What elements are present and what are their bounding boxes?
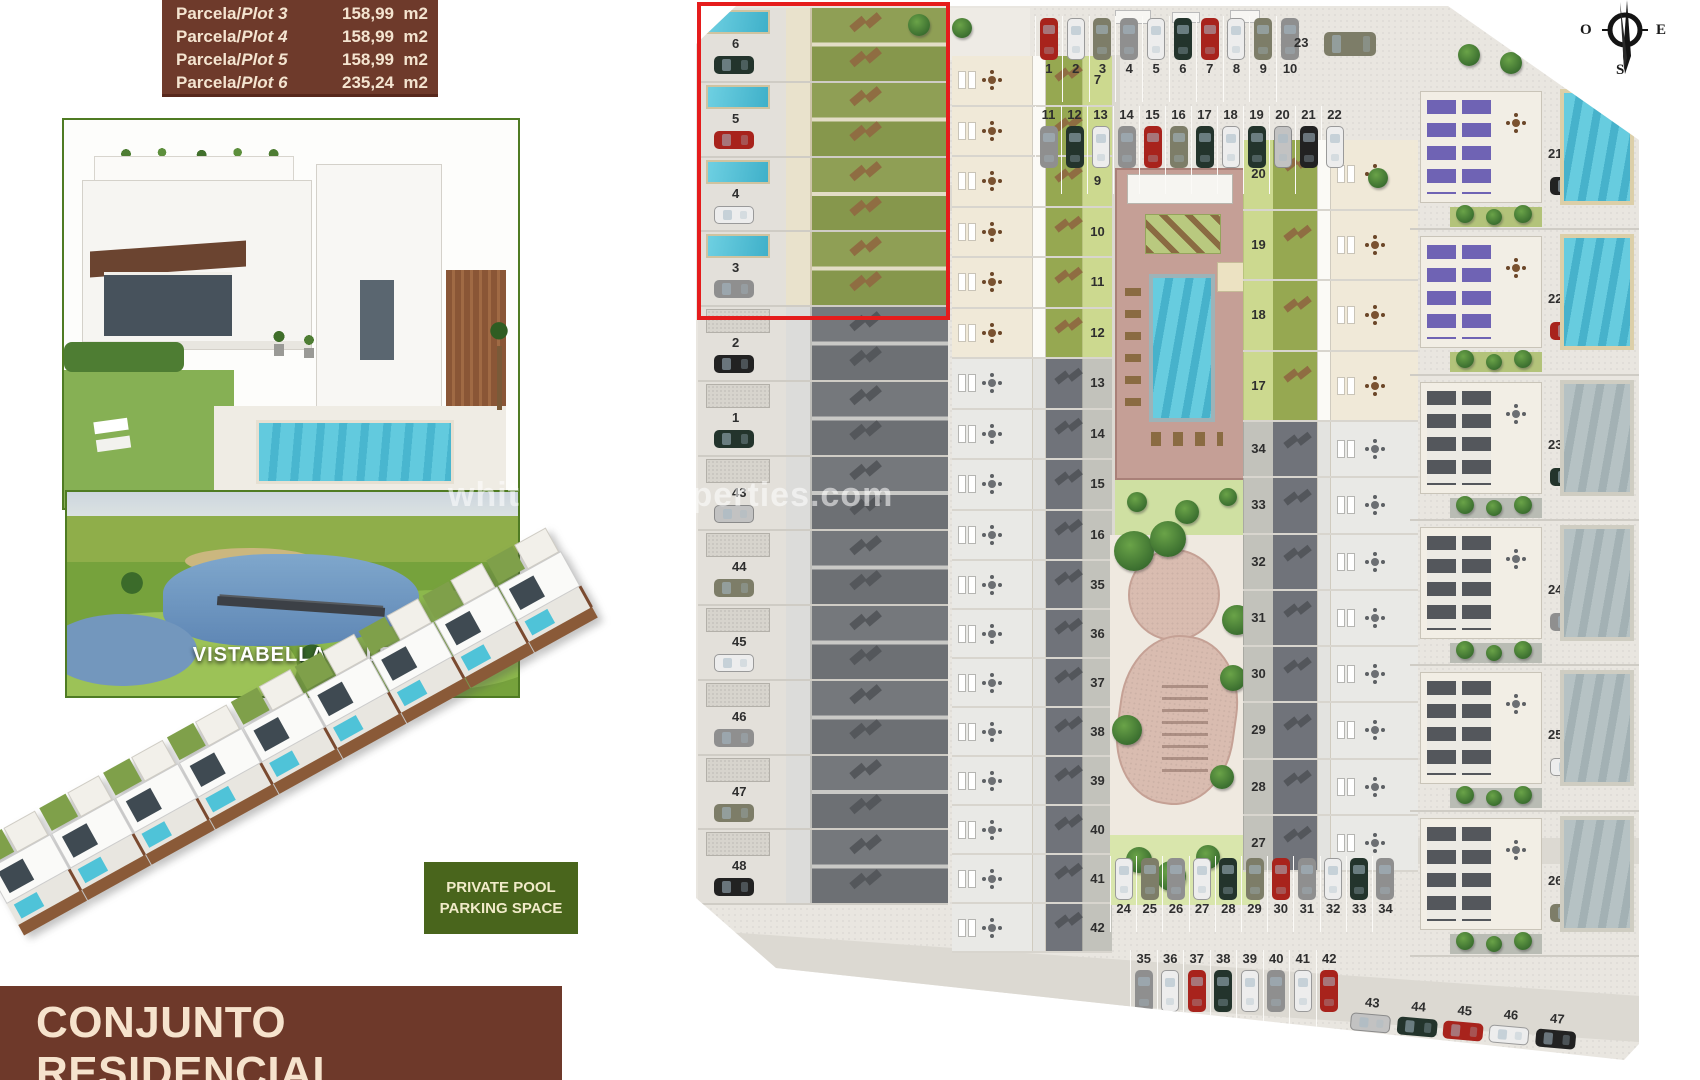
plot-row: Parcela/Plot 6 235,24 m2 — [176, 71, 428, 94]
house-roof — [1032, 757, 1046, 804]
parking-space: 32 — [1320, 856, 1346, 932]
roof-terrace — [952, 359, 1032, 408]
tree-icon — [1514, 641, 1532, 659]
plot-number: 17 — [1251, 379, 1265, 393]
plot-number-cell: 29 — [1243, 703, 1273, 757]
garden — [1046, 806, 1082, 853]
parking-number: 16 — [1171, 108, 1185, 122]
house-roof — [1317, 281, 1331, 350]
roof-terrace — [952, 561, 1032, 608]
car-icon — [1535, 1028, 1576, 1049]
roof-garden — [812, 531, 948, 604]
roof-terrace — [1331, 281, 1418, 350]
roof-terrace — [1331, 647, 1418, 701]
car-icon — [1241, 970, 1259, 1012]
palm-tree — [484, 320, 514, 410]
house — [786, 382, 948, 455]
parking-number: 31 — [1300, 902, 1314, 916]
parking-space: 14 — [1113, 106, 1139, 194]
car-icon — [1196, 126, 1214, 168]
private-pool — [1560, 89, 1634, 205]
plot-number-cell: 11 — [1082, 258, 1112, 307]
garden — [1046, 511, 1082, 560]
solar-panels — [1427, 245, 1491, 339]
plot-number: 39 — [1090, 774, 1104, 788]
table-chairs-icon — [1507, 841, 1525, 859]
parking-space: 40 — [1263, 950, 1290, 1036]
plot-number-cell: 37 — [1082, 659, 1112, 706]
plot-number: 28 — [1251, 780, 1265, 794]
roof-terrace — [1331, 760, 1418, 814]
plot-row: Parcela/Plot 5 158,99 m2 — [176, 48, 428, 71]
car-icon — [1066, 126, 1084, 168]
plot-number-cell: 19 — [1243, 211, 1273, 280]
tree-icon — [1486, 790, 1502, 806]
house-wall — [786, 681, 812, 754]
features-line2: PARKING SPACE — [440, 898, 563, 919]
parking-number: 8 — [1233, 62, 1240, 76]
parking-space: 27 — [1189, 856, 1215, 932]
plot-number: 37 — [1090, 676, 1104, 690]
parking-row-south-1: 24 25 26 27 28 29 30 — [1110, 856, 1398, 932]
plot-number: 12 — [1090, 326, 1104, 340]
tree-icon — [1127, 492, 1147, 512]
house-roof — [1317, 760, 1331, 814]
parking-space: 18 — [1217, 106, 1243, 194]
parking-number: 18 — [1223, 108, 1237, 122]
car-icon — [1350, 858, 1368, 900]
parking-number: 12 — [1067, 108, 1081, 122]
plot-label: Parcela/Plot 3 — [176, 4, 332, 24]
plot-number: 48 — [732, 859, 746, 873]
plot-number: 33 — [1251, 498, 1265, 512]
private-pool — [1560, 380, 1634, 496]
table-chairs-icon — [983, 122, 1001, 140]
plot-cell: 40 — [952, 806, 1112, 855]
garage-slab — [706, 758, 770, 782]
car-icon — [1115, 858, 1133, 900]
table-chairs-icon — [1366, 377, 1384, 395]
car-icon — [1326, 126, 1344, 168]
tree-icon — [1112, 715, 1142, 745]
parking-space: 7 — [1196, 16, 1223, 102]
plot-cell: 15 — [952, 460, 1112, 511]
car-icon — [1219, 858, 1237, 900]
table-chairs-icon — [983, 475, 1001, 493]
parking-number: 33 — [1352, 902, 1366, 916]
plot-number-cell: 33 — [1243, 478, 1273, 532]
page-title: CONJUNTO RESIDENCIAL — [36, 998, 562, 1080]
plot-cell: 30 — [1243, 647, 1418, 703]
house-roof — [1032, 904, 1046, 951]
garden — [1273, 591, 1317, 645]
car-icon — [1167, 858, 1185, 900]
car-icon — [1489, 1024, 1530, 1045]
roof-terrace — [952, 410, 1032, 459]
car-icon — [1294, 970, 1312, 1012]
plot-area-unit: m2 — [394, 50, 428, 70]
garden — [1450, 498, 1542, 518]
plot-cell: 18 — [1243, 281, 1418, 352]
garden — [1273, 211, 1317, 280]
garden — [1046, 561, 1082, 608]
parking-number: 9 — [1260, 62, 1267, 76]
title-banner: CONJUNTO RESIDENCIAL DEVELOPMENT PLAN — [0, 986, 562, 1080]
plot-number: 46 — [732, 710, 746, 724]
parking-space: 47 — [1530, 1008, 1581, 1068]
plot-number: 40 — [1090, 823, 1104, 837]
table-chairs-icon — [983, 374, 1001, 392]
roof-garden — [812, 756, 948, 829]
tree-icon — [1514, 350, 1532, 368]
plot-number-cell: 40 — [1082, 806, 1112, 853]
driveway: 47 — [698, 756, 786, 829]
plant-pot — [300, 334, 318, 358]
tree-icon — [1368, 168, 1388, 188]
car-icon — [1222, 126, 1240, 168]
roof-terrace — [1331, 535, 1418, 589]
plot-label: Parcela/Plot 6 — [176, 73, 332, 93]
table-chairs-icon — [1366, 721, 1384, 739]
table-chairs-icon — [983, 425, 1001, 443]
car-icon — [1396, 1016, 1437, 1037]
car-icon — [1376, 858, 1394, 900]
garden — [1450, 934, 1542, 954]
table-chairs-icon — [1366, 236, 1384, 254]
parking-space: 42 — [1316, 950, 1343, 1036]
plot-cell: 14 — [952, 410, 1112, 461]
plot-cell: 29 — [1243, 703, 1418, 759]
parking-space: 8 — [1223, 16, 1250, 102]
tree-icon — [1456, 350, 1474, 368]
car-icon — [1170, 126, 1188, 168]
table-chairs-icon — [983, 919, 1001, 937]
parking-space: 19 — [1243, 106, 1269, 194]
house-wall — [786, 756, 812, 829]
table-chairs-icon — [983, 625, 1001, 643]
house-wall — [786, 830, 812, 903]
plot-cell: 46 — [698, 681, 948, 756]
parking-row-south-2: 35 36 37 38 39 40 41 — [1130, 950, 1342, 1036]
table-chairs-icon — [1366, 778, 1384, 796]
parking-row-north-2: 11 12 13 14 15 16 17 — [1035, 106, 1347, 194]
garden — [1273, 535, 1317, 589]
plot-area: 158,99 — [332, 50, 394, 70]
parking-space: 17 — [1191, 106, 1217, 194]
house-wall — [786, 382, 812, 455]
parking-space: 41 — [1289, 950, 1316, 1036]
parking-space: 34 — [1372, 856, 1398, 932]
garden — [1450, 352, 1542, 372]
table-chairs-icon — [983, 273, 1001, 291]
plot-number-cell: 28 — [1243, 760, 1273, 814]
plot-number-cell: 16 — [1082, 511, 1112, 560]
table-chairs-icon — [1366, 553, 1384, 571]
house-roof — [1317, 703, 1331, 757]
parking-space: 9 — [1249, 16, 1276, 102]
table-chairs-icon — [1366, 306, 1384, 324]
plot-number: 45 — [732, 635, 746, 649]
private-pool — [256, 420, 454, 484]
plot-number-cell: 35 — [1082, 561, 1112, 608]
house-roof — [1032, 511, 1046, 560]
plot-number: 13 — [1090, 376, 1104, 390]
plot-number: 47 — [732, 785, 746, 799]
parking-number: 10 — [1283, 62, 1297, 76]
tree-icon — [1514, 786, 1532, 804]
tree-icon — [1500, 52, 1522, 74]
tree-icon — [119, 570, 145, 596]
roof-garden — [812, 382, 948, 455]
garden — [1273, 478, 1317, 532]
parking-space: 35 — [1130, 950, 1157, 1036]
plot-cell: 22 — [1410, 230, 1640, 375]
parking-number: 17 — [1197, 108, 1211, 122]
parking-number: 35 — [1137, 952, 1151, 966]
house — [1420, 91, 1542, 203]
parking-number: 29 — [1247, 902, 1261, 916]
house-roof — [1317, 478, 1331, 532]
plot-number: 10 — [1090, 225, 1104, 239]
plot-number-cell: 36 — [1082, 610, 1112, 657]
car-icon — [1141, 858, 1159, 900]
house — [1420, 818, 1542, 930]
plot-cell: 23 — [1410, 376, 1640, 521]
house-roof — [1032, 855, 1046, 902]
solar-panels — [1427, 681, 1491, 775]
car-icon — [1067, 18, 1085, 60]
tree-icon — [393, 608, 427, 642]
parking-number: 1 — [1045, 62, 1052, 76]
car-icon — [1214, 970, 1232, 1012]
roof-terrace — [952, 208, 1032, 257]
table-chairs-icon — [983, 223, 1001, 241]
plot-number: 29 — [1251, 723, 1265, 737]
house-roof — [1317, 211, 1331, 280]
roof-parapet — [94, 156, 294, 182]
driveway: 46 — [698, 681, 786, 754]
villa-render-photo — [62, 118, 520, 510]
garden — [1046, 855, 1082, 902]
house — [1420, 672, 1542, 784]
plot-cell: 31 — [1243, 591, 1418, 647]
plot-cell: 35 — [952, 561, 1112, 610]
garden — [1450, 788, 1542, 808]
solar-panels — [1427, 827, 1491, 921]
garden — [1450, 643, 1542, 663]
plot-area: 235,24 — [332, 73, 394, 93]
house-roof — [1317, 647, 1331, 701]
plot-number: 2 — [732, 336, 739, 350]
table-chairs-icon — [1366, 609, 1384, 627]
plot-number-cell: 18 — [1243, 281, 1273, 350]
parking-space: 45 — [1438, 1000, 1489, 1060]
parking-space: 24 — [1110, 856, 1136, 932]
table-chairs-icon — [983, 723, 1001, 741]
highlight-red-box — [697, 2, 950, 320]
watermark: whitecoastproperties.com — [448, 476, 893, 515]
garden — [1273, 422, 1317, 476]
solar-panels — [1427, 536, 1491, 630]
communal-pool — [1149, 274, 1215, 422]
tree-icon — [1175, 500, 1199, 524]
parking-number: 23 — [1294, 36, 1308, 50]
sun-loungers — [1125, 288, 1141, 420]
parking-number: 45 — [1457, 1003, 1473, 1018]
plot-number: 38 — [1090, 725, 1104, 739]
parking-space: 11 — [1035, 106, 1061, 194]
roof-terrace — [1331, 703, 1418, 757]
car-icon — [1174, 18, 1192, 60]
garden — [1273, 703, 1317, 757]
car-icon — [714, 355, 754, 373]
compass-rose: O E S — [1580, 0, 1670, 90]
car-icon — [1254, 18, 1272, 60]
parking-space: 39 — [1236, 950, 1263, 1036]
parking-number: 14 — [1119, 108, 1133, 122]
house-roof — [1032, 460, 1046, 509]
car-icon — [1300, 126, 1318, 168]
roof-terrace — [952, 309, 1032, 358]
house-roof — [1317, 352, 1331, 421]
plot-number: 30 — [1251, 667, 1265, 681]
plot-number: 15 — [1090, 477, 1104, 491]
parking-number: 39 — [1243, 952, 1257, 966]
parking-space: 20 — [1269, 106, 1295, 194]
plot-cell: 38 — [952, 708, 1112, 757]
house-roof — [1032, 561, 1046, 608]
garden — [1273, 352, 1317, 421]
garden — [1046, 359, 1082, 408]
east-plots-column: 21 22 — [1410, 85, 1640, 957]
house-roof — [1032, 806, 1046, 853]
house-roof — [1317, 591, 1331, 645]
parking-space: 1 — [1035, 16, 1062, 102]
car-icon — [714, 804, 754, 822]
roof-terrace — [952, 708, 1032, 755]
plot-number-cell: 31 — [1243, 591, 1273, 645]
plot-cell: 45 — [698, 606, 948, 681]
plot-cell: 39 — [952, 757, 1112, 806]
tree-icon — [1486, 645, 1502, 661]
parking-number: 32 — [1326, 902, 1340, 916]
house-roof — [1032, 359, 1046, 408]
house — [786, 830, 948, 903]
house — [1420, 382, 1542, 494]
car-icon — [1040, 18, 1058, 60]
plot-number: 44 — [732, 560, 746, 574]
roof-terrace — [952, 904, 1032, 951]
table-chairs-icon — [1507, 259, 1525, 277]
car-icon — [1272, 858, 1290, 900]
roof-terrace — [952, 511, 1032, 560]
parking-space: 3 — [1089, 16, 1116, 102]
roof-garden — [812, 681, 948, 754]
plot-number: 19 — [1251, 238, 1265, 252]
plot-number: 1 — [732, 411, 739, 425]
villa-tower-door — [360, 280, 394, 360]
roof-terrace — [1331, 591, 1418, 645]
parking-number: 21 — [1301, 108, 1315, 122]
brochure-page: Parcela/Plot 3 158,99 m2 Parcela/Plot 4 … — [0, 0, 1700, 1080]
parking-space: 2 — [1062, 16, 1089, 102]
house — [786, 681, 948, 754]
parking-number: 44 — [1411, 999, 1427, 1014]
table-chairs-icon — [1366, 496, 1384, 514]
parking-number: 40 — [1269, 952, 1283, 966]
features-box: PRIVATE POOL PARKING SPACE — [424, 862, 578, 934]
parking-number: 36 — [1163, 952, 1177, 966]
parking-number: 43 — [1365, 995, 1381, 1010]
plot-cell: 48 — [698, 830, 948, 905]
table-chairs-icon — [983, 821, 1001, 839]
plot-cell: 47 — [698, 756, 948, 831]
plot-label: Parcela/Plot 4 — [176, 27, 332, 47]
car-icon — [1120, 18, 1138, 60]
car-icon — [1201, 18, 1219, 60]
table-chairs-icon — [1507, 550, 1525, 568]
car-icon — [1442, 1020, 1483, 1041]
garden — [1450, 207, 1542, 227]
plot-number: 16 — [1090, 528, 1104, 542]
house-roof — [1317, 535, 1331, 589]
table-chairs-icon — [1507, 405, 1525, 423]
garden — [1046, 757, 1082, 804]
car-icon — [1274, 126, 1292, 168]
roof-garden — [812, 606, 948, 679]
house — [786, 756, 948, 829]
house-wall — [786, 606, 812, 679]
plot-cell: 36 — [952, 610, 1112, 659]
car-icon — [1092, 126, 1110, 168]
parking-space: 46 — [1484, 1004, 1535, 1064]
roof-terrace — [1331, 352, 1418, 421]
roof-terrace — [952, 855, 1032, 902]
parking-space: 43 — [1345, 992, 1396, 1052]
parking-number: 3 — [1099, 62, 1106, 76]
car-icon — [714, 729, 754, 747]
plot-number-cell: 41 — [1082, 855, 1112, 902]
parking-number: 22 — [1327, 108, 1341, 122]
landscaped-plaza — [1110, 535, 1255, 835]
table-chairs-icon — [983, 674, 1001, 692]
tree-icon — [1458, 44, 1480, 66]
glass-doors — [104, 272, 232, 336]
communal-pool-area — [1115, 168, 1253, 480]
tree-icon — [1486, 209, 1502, 225]
townhouse-unit — [0, 806, 89, 939]
roof-terrace — [952, 610, 1032, 657]
garden — [1046, 208, 1082, 257]
tree-icon — [1486, 500, 1502, 516]
parking-space: 16 — [1165, 106, 1191, 194]
golf-course-photo: VISTABELLA GOLF — [65, 490, 520, 698]
plot-cell: 10 — [952, 208, 1112, 259]
plot-number: 42 — [1090, 921, 1104, 935]
car-icon — [1118, 126, 1136, 168]
plot-cell: 37 — [952, 659, 1112, 708]
parking-number: 7 — [1206, 62, 1213, 76]
garden — [1046, 309, 1082, 358]
table-chairs-icon — [1366, 665, 1384, 683]
plot-cell: 19 — [1243, 211, 1418, 282]
plot-number-cell: 14 — [1082, 410, 1112, 459]
plot-number-cell: 42 — [1082, 904, 1112, 951]
roof-terrace — [952, 258, 1032, 307]
plot-cell: 44 — [698, 531, 948, 606]
car-icon — [1350, 1012, 1391, 1033]
plot-area-unit: m2 — [394, 4, 428, 24]
